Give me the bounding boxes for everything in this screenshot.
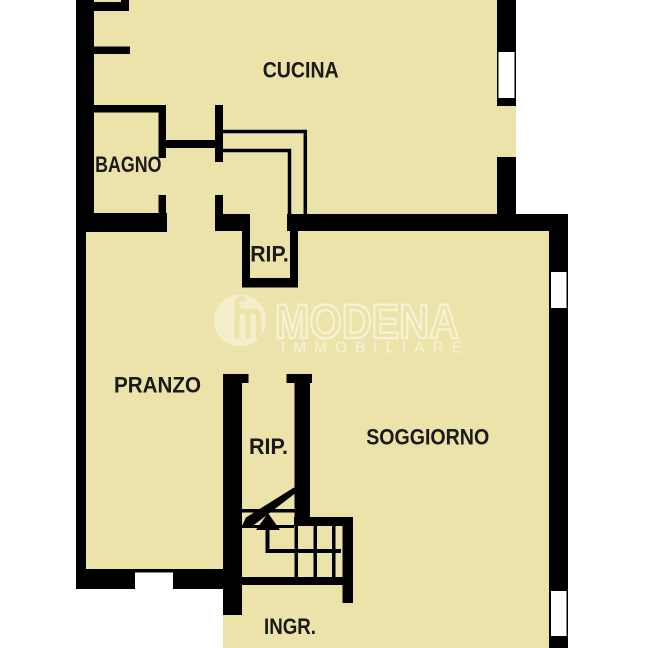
svg-text:RIP.: RIP. bbox=[249, 434, 288, 459]
svg-text:CUCINA: CUCINA bbox=[263, 58, 339, 83]
svg-text:INGR.: INGR. bbox=[264, 614, 316, 639]
svg-text:SOGGIORNO: SOGGIORNO bbox=[366, 425, 489, 450]
svg-text:PRANZO: PRANZO bbox=[114, 373, 201, 398]
svg-text:RIP.: RIP. bbox=[250, 242, 289, 267]
svg-text:BAGNO: BAGNO bbox=[95, 152, 161, 177]
